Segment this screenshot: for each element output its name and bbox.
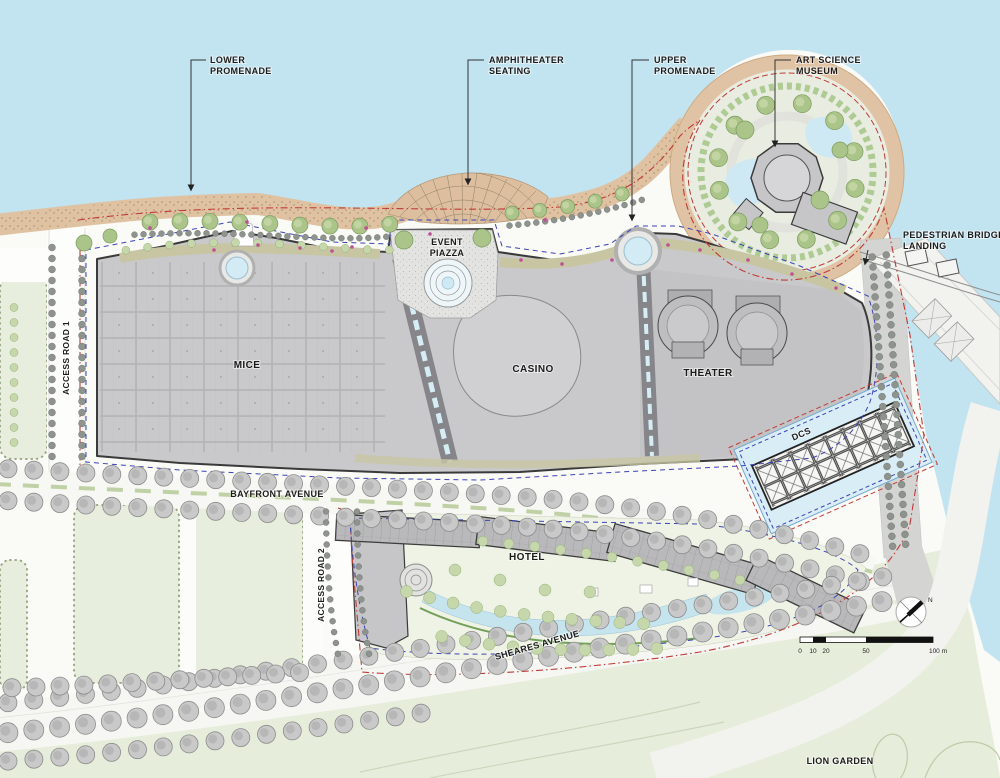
tree <box>518 608 530 620</box>
tree <box>471 602 483 614</box>
tree-crown <box>234 217 242 225</box>
tree-crown <box>27 753 36 762</box>
tree <box>684 565 694 575</box>
tree <box>886 503 893 510</box>
tree-crown <box>624 531 633 540</box>
tree-crown <box>521 521 530 530</box>
tree-crown <box>131 469 140 478</box>
tree <box>341 244 349 252</box>
tree <box>319 243 327 251</box>
tree-crown <box>52 720 62 730</box>
tree-crown <box>182 738 191 747</box>
tree <box>79 354 86 361</box>
tree-crown <box>79 467 88 476</box>
tree-crown <box>293 666 302 675</box>
tree <box>888 533 895 540</box>
tree-crown <box>772 612 782 622</box>
tree-crown <box>294 220 302 228</box>
tree-crown <box>773 587 782 596</box>
tree-crown <box>144 217 152 225</box>
tree <box>49 376 56 383</box>
tree <box>49 255 56 262</box>
tree-crown <box>354 221 362 229</box>
tree-crown <box>592 641 602 651</box>
tree <box>49 321 56 328</box>
tree <box>627 644 639 656</box>
tree <box>895 431 902 438</box>
tree-crown <box>53 680 62 689</box>
tree <box>177 230 183 236</box>
tree <box>889 341 896 348</box>
tree <box>875 343 882 350</box>
tree <box>79 453 86 460</box>
tree-crown <box>26 723 36 733</box>
tree-crown <box>803 563 812 572</box>
tree <box>888 321 895 328</box>
tree <box>159 231 165 237</box>
tree <box>49 266 56 273</box>
tree <box>709 570 719 580</box>
tree <box>876 353 883 360</box>
tree <box>362 629 368 635</box>
tree <box>168 230 174 236</box>
tree <box>886 291 893 298</box>
tree-crown <box>438 666 448 676</box>
tree <box>885 483 892 490</box>
tree <box>590 615 602 627</box>
label-mice: MICE <box>234 360 261 371</box>
tree <box>150 231 156 237</box>
tree-crown <box>0 726 10 736</box>
tree <box>325 574 331 580</box>
tree-crown <box>823 604 833 614</box>
tree <box>326 585 332 591</box>
tree <box>447 597 459 609</box>
tree-crown <box>173 674 182 683</box>
tree-crown <box>29 681 38 690</box>
tree <box>302 234 308 240</box>
tree-crown <box>850 575 859 584</box>
tree <box>886 493 893 500</box>
tree-crown <box>258 693 268 703</box>
tree <box>886 301 893 308</box>
tree <box>894 411 901 418</box>
tree <box>877 363 884 370</box>
tree <box>638 618 650 630</box>
tree-crown <box>310 686 320 696</box>
tree-crown <box>53 751 62 760</box>
tree <box>79 420 86 427</box>
tree-crown <box>413 670 423 680</box>
tree <box>898 481 905 488</box>
tree-crown <box>209 505 218 514</box>
tree <box>79 288 86 295</box>
tree-crown <box>284 690 294 700</box>
tree-crown <box>721 621 731 631</box>
tree-crown <box>53 465 62 474</box>
tree <box>354 531 360 537</box>
tree-crown <box>701 543 710 552</box>
tree <box>882 443 889 450</box>
tree-crown <box>245 669 254 678</box>
tree-crown <box>391 513 400 522</box>
tree-crown <box>675 509 684 518</box>
tree-crown <box>796 97 805 106</box>
tree <box>883 453 890 460</box>
tree <box>887 311 894 318</box>
tree <box>231 231 237 237</box>
tree-crown <box>131 743 140 752</box>
tree-crown <box>849 599 859 609</box>
tree <box>10 304 18 312</box>
tree <box>79 343 86 350</box>
tree <box>870 273 877 280</box>
tree <box>49 409 56 416</box>
tree <box>320 235 326 241</box>
tree <box>204 230 210 236</box>
tree <box>879 403 886 410</box>
tree <box>581 548 591 558</box>
tree-crown <box>624 502 633 511</box>
tree <box>335 651 341 657</box>
tree-crown <box>389 711 398 720</box>
tree <box>355 553 361 559</box>
scale-tick-10: 10 <box>809 648 817 655</box>
label-access-road-1: ACCESS ROAD 1 <box>61 321 71 395</box>
tree-crown <box>391 483 400 492</box>
tree-crown <box>101 678 110 687</box>
tree <box>902 541 909 548</box>
tree-crown <box>417 515 426 524</box>
tree-crown <box>644 633 654 643</box>
tree-crown <box>311 721 320 730</box>
tree <box>878 383 885 390</box>
tree <box>10 439 18 447</box>
tree <box>551 217 557 223</box>
tree-crown <box>731 216 740 225</box>
tree-crown <box>336 682 346 692</box>
tree <box>213 231 219 237</box>
tree-crown <box>235 506 244 515</box>
tree <box>874 323 881 330</box>
label-casino: CASINO <box>512 364 553 375</box>
tree-crown <box>800 233 809 242</box>
tree <box>311 235 317 241</box>
tree-crown <box>287 509 296 518</box>
tree <box>79 387 86 394</box>
tree-crown <box>157 741 166 750</box>
tree-crown <box>365 512 374 521</box>
tree <box>587 211 593 217</box>
tree <box>10 319 18 327</box>
tree <box>524 221 530 227</box>
tree-crown <box>443 516 452 525</box>
tree <box>881 433 888 440</box>
tree <box>356 574 362 580</box>
tree-crown <box>105 500 114 509</box>
scale-tick-100: 100 m <box>929 648 947 655</box>
tree <box>542 611 554 623</box>
tree-crown <box>339 480 348 489</box>
tree-crown <box>363 714 372 723</box>
tree-crown <box>713 184 722 193</box>
tree-crown <box>157 471 166 480</box>
tree <box>166 241 174 249</box>
tree <box>210 239 218 247</box>
tree-crown <box>287 477 296 486</box>
tree-crown <box>828 114 837 123</box>
tree <box>10 409 18 417</box>
tree-crown <box>759 99 768 108</box>
tree-crown <box>204 216 212 224</box>
tree-crown <box>876 571 885 580</box>
tree-crown <box>722 595 731 604</box>
tree <box>881 423 888 430</box>
tree <box>890 351 897 358</box>
tree <box>401 586 413 598</box>
tree-crown <box>746 617 756 627</box>
tree <box>358 596 364 602</box>
tree <box>10 394 18 402</box>
tree-crown <box>384 219 392 227</box>
tree <box>293 234 299 240</box>
tree-crown <box>235 475 244 484</box>
tree-crown <box>516 626 525 635</box>
tree-crown <box>669 629 679 639</box>
tree-crown <box>748 591 757 600</box>
tree <box>195 230 201 236</box>
tree-crown <box>208 735 217 744</box>
tree <box>874 333 881 340</box>
tree <box>49 398 56 405</box>
tree-crown <box>520 491 529 500</box>
tree-crown <box>572 496 581 505</box>
tree <box>330 618 336 624</box>
tree <box>897 461 904 468</box>
tree <box>899 491 906 498</box>
tree-crown <box>125 676 134 685</box>
tree <box>79 299 86 306</box>
tree-crown <box>676 539 685 548</box>
label-theater: THEATER <box>683 368 733 379</box>
label-bayfront-avenue: BAYFRONT AVENUE <box>230 489 323 499</box>
tree-crown <box>562 202 569 209</box>
tree <box>900 511 907 518</box>
tree-crown <box>388 646 397 655</box>
site-plan: DCS <box>0 0 1000 778</box>
tree <box>361 618 367 624</box>
tree-crown <box>183 472 192 481</box>
tree-crown <box>696 599 705 608</box>
tree <box>338 235 344 241</box>
tree <box>887 513 894 520</box>
tree <box>328 607 334 613</box>
tree <box>365 235 371 241</box>
tree-crown <box>803 534 812 543</box>
tree <box>622 202 628 208</box>
tree <box>49 299 56 306</box>
tree <box>900 501 907 508</box>
tree-crown <box>414 642 423 651</box>
scale-tick-50: 50 <box>862 648 870 655</box>
tree <box>10 349 18 357</box>
tree-crown <box>567 645 577 655</box>
tree-crown <box>311 658 320 667</box>
tree-crown <box>650 505 659 514</box>
tree <box>323 509 329 515</box>
tree <box>49 365 56 372</box>
tree-crown <box>752 523 761 532</box>
tree <box>355 542 361 548</box>
tree <box>436 631 448 643</box>
tree-crown <box>695 625 705 635</box>
tree-crown <box>221 671 230 680</box>
tree <box>363 246 371 254</box>
tree-crown <box>27 464 36 473</box>
tree-crown <box>778 557 787 566</box>
tree-crown <box>337 718 346 727</box>
tree <box>556 545 566 555</box>
tree <box>144 243 152 251</box>
tree-crown <box>207 701 217 711</box>
tree-crown <box>269 668 278 677</box>
tree <box>884 473 891 480</box>
tree <box>898 471 905 478</box>
tree <box>79 409 86 416</box>
tree-crown <box>1 696 10 705</box>
tree <box>504 539 514 549</box>
scale-tick-20: 20 <box>822 648 830 655</box>
tree <box>658 561 668 571</box>
tree-crown <box>414 707 423 716</box>
tree <box>79 398 86 405</box>
tree-crown <box>131 501 140 510</box>
tree-crown <box>157 503 166 512</box>
tree <box>49 277 56 284</box>
tree-crown <box>417 484 426 493</box>
tree-crown <box>727 518 736 527</box>
site-plan-canvas: DCS <box>0 0 1000 778</box>
tree <box>566 613 578 625</box>
tree <box>366 651 372 657</box>
tree <box>893 401 900 408</box>
tree-crown <box>617 189 624 196</box>
tree-crown <box>313 479 322 488</box>
tree-crown <box>105 468 114 477</box>
tree-crown <box>495 489 504 498</box>
tree <box>275 240 283 248</box>
tree-crown <box>53 497 62 506</box>
tree <box>266 232 272 238</box>
tree-crown <box>183 504 192 513</box>
tree-crown <box>1 495 10 504</box>
tree <box>10 379 18 387</box>
tree <box>10 334 18 342</box>
tree-crown <box>149 675 158 684</box>
tree <box>79 431 86 438</box>
tree <box>607 552 617 562</box>
tree <box>884 463 891 470</box>
tree-crown <box>464 662 474 672</box>
tree <box>533 220 539 226</box>
tree <box>49 288 56 295</box>
tree <box>327 596 333 602</box>
tree-crown <box>261 507 270 516</box>
tree-crown <box>546 493 555 502</box>
tree-crown <box>491 630 500 639</box>
tree <box>892 391 899 398</box>
tree-crown <box>27 496 36 505</box>
tree-crown <box>547 523 556 532</box>
tree-crown <box>752 552 761 561</box>
tree <box>49 442 56 449</box>
tree-crown <box>590 196 597 203</box>
tree <box>188 240 196 248</box>
tree <box>902 531 909 538</box>
tree <box>232 239 240 247</box>
tree <box>364 640 370 646</box>
tree-crown <box>260 728 269 737</box>
tree-crown <box>875 595 885 605</box>
tree-crown <box>79 499 88 508</box>
tree-crown <box>339 511 348 520</box>
tree <box>579 644 591 656</box>
tree <box>122 246 130 254</box>
tree-crown <box>728 119 737 128</box>
tree <box>186 230 192 236</box>
tree-crown <box>828 541 837 550</box>
tree-crown <box>77 679 86 688</box>
tree-crown <box>535 205 542 212</box>
tree <box>633 556 643 566</box>
tree <box>49 387 56 394</box>
tree-crown <box>778 528 787 537</box>
tree <box>331 629 337 635</box>
tree-crown <box>542 622 551 631</box>
tree <box>357 585 363 591</box>
tree-crown <box>286 725 295 734</box>
tree <box>383 234 389 240</box>
label-lion-garden: LION GARDEN <box>807 756 874 766</box>
tree <box>79 277 86 284</box>
tree-crown <box>831 214 840 223</box>
tree-crown <box>847 145 856 154</box>
tree-crown <box>5 681 14 690</box>
tree <box>354 509 360 515</box>
tree <box>877 373 884 380</box>
tree <box>896 441 903 448</box>
tree <box>515 222 521 228</box>
tree-crown <box>209 473 218 482</box>
tree-crown <box>104 714 114 724</box>
tree-crown <box>130 711 140 721</box>
tree-crown <box>233 697 243 707</box>
tree-crown <box>324 221 332 229</box>
tree-crown <box>234 731 243 740</box>
tree <box>424 592 436 604</box>
tree <box>354 520 360 526</box>
tree <box>284 233 290 239</box>
tree <box>604 207 610 213</box>
mice-halls <box>100 262 385 452</box>
tree <box>49 354 56 361</box>
scale-tick-0: 0 <box>798 648 802 655</box>
tree-crown <box>197 672 206 681</box>
tree <box>79 310 86 317</box>
tree <box>603 644 615 656</box>
tree <box>374 234 380 240</box>
label-north: N <box>928 597 933 604</box>
